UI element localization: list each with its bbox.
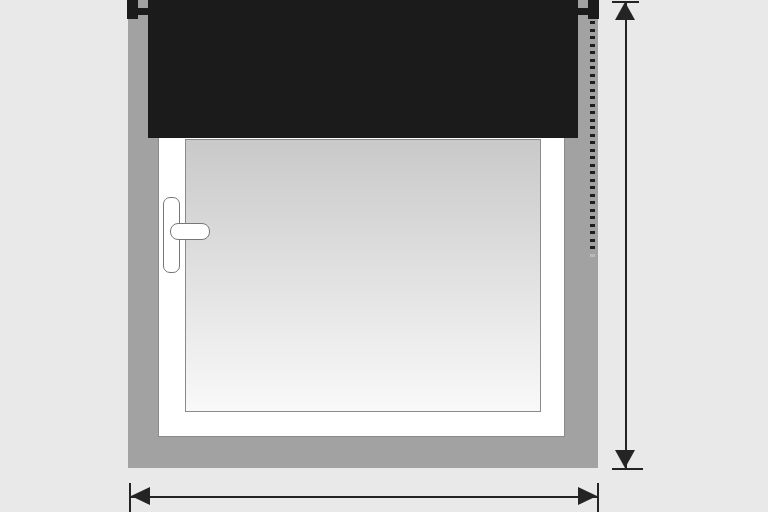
chain-bead — [590, 209, 595, 212]
chain-bead — [590, 216, 595, 219]
chain-bead — [590, 119, 595, 122]
chain-bead — [590, 36, 595, 39]
chain-bead — [590, 89, 595, 92]
chain-bead — [590, 246, 595, 249]
roller-blind-fabric — [148, 0, 578, 138]
chain-bead — [590, 194, 595, 197]
chain-bead — [590, 239, 595, 242]
chain-bead — [590, 164, 595, 167]
chain-bead — [590, 141, 595, 144]
chain-bead — [590, 44, 595, 47]
roller-blind-measurement-diagram — [0, 0, 768, 512]
chain-bead — [590, 201, 595, 204]
chain-bead — [590, 179, 595, 182]
arrowhead-right-icon — [578, 487, 597, 505]
chain-bead — [590, 111, 595, 114]
height-measure-line — [625, 2, 627, 468]
arrowhead-left-icon — [131, 487, 150, 505]
blind-pull-chain-end — [590, 254, 595, 257]
chain-bead — [590, 96, 595, 99]
width-measure-tick-right — [597, 483, 599, 512]
chain-bead — [590, 231, 595, 234]
width-measure-line — [131, 496, 597, 498]
window-glass — [185, 139, 541, 412]
chain-bead — [590, 104, 595, 107]
mounting-bracket-left-arm — [136, 8, 150, 15]
chain-bead — [590, 156, 595, 159]
chain-bead — [590, 51, 595, 54]
chain-bead — [590, 81, 595, 84]
chain-bead — [590, 224, 595, 227]
height-measure-cap-bottom — [612, 468, 643, 470]
chain-bead — [590, 59, 595, 62]
arrowhead-down-icon — [615, 450, 635, 468]
chain-bead — [590, 186, 595, 189]
chain-bead — [590, 21, 595, 24]
blind-pull-chain — [590, 21, 595, 257]
window-handle-grip — [170, 223, 210, 240]
chain-bead — [590, 149, 595, 152]
mounting-bracket-right-arm — [576, 8, 590, 15]
chain-bead — [590, 29, 595, 32]
chain-bead — [590, 126, 595, 129]
chain-bead — [590, 66, 595, 69]
chain-bead — [590, 74, 595, 77]
chain-bead — [590, 171, 595, 174]
arrowhead-up-icon — [615, 2, 635, 20]
chain-bead — [590, 134, 595, 137]
